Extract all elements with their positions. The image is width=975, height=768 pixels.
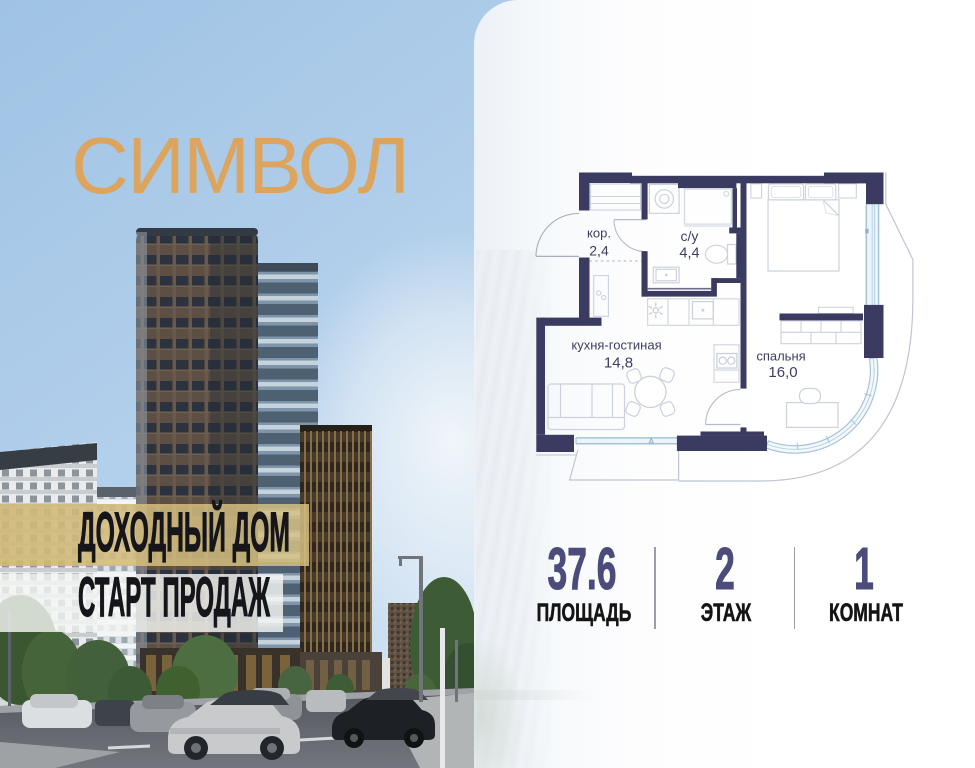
- svg-text:4,4: 4,4: [679, 246, 699, 262]
- svg-text:2,4: 2,4: [589, 243, 609, 259]
- svg-text:с/у: с/у: [681, 228, 699, 244]
- svg-text:кухня-гостиная: кухня-гостиная: [571, 338, 661, 353]
- svg-text:14,8: 14,8: [604, 355, 633, 372]
- svg-text:спальня: спальня: [756, 349, 805, 364]
- svg-text:16,0: 16,0: [768, 364, 797, 381]
- svg-text:кор.: кор.: [587, 226, 611, 241]
